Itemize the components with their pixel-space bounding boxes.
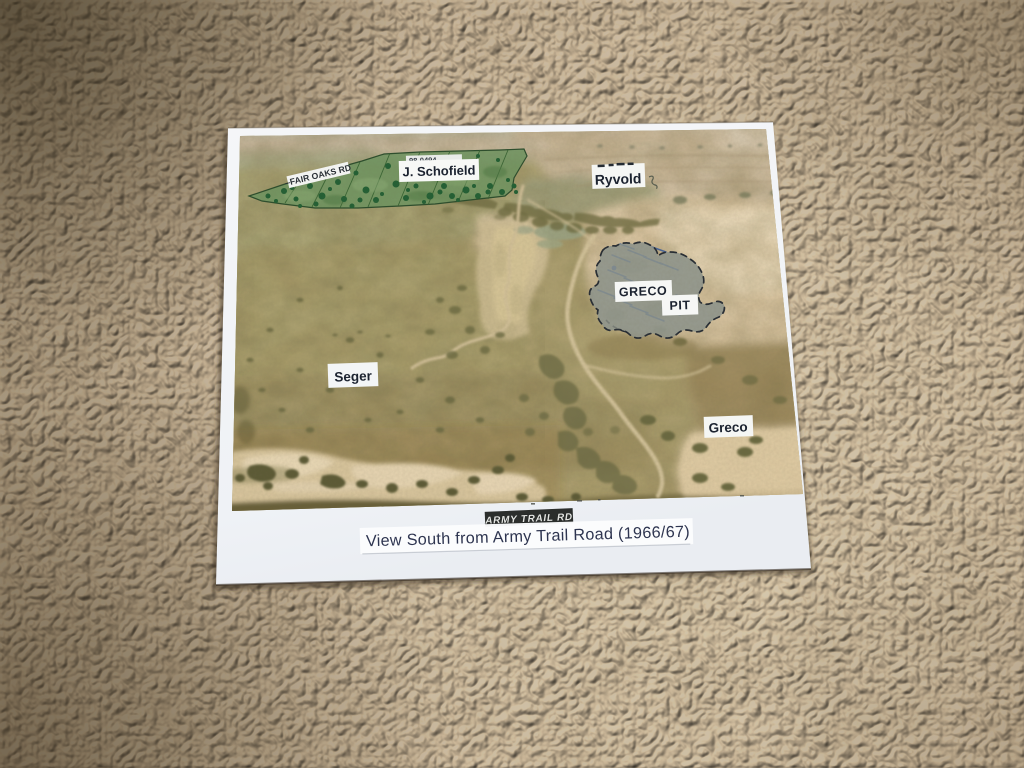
svg-text:Seger: Seger — [334, 368, 373, 384]
svg-text:Greco: Greco — [708, 419, 748, 435]
svg-text:PIT: PIT — [669, 298, 690, 313]
svg-text:Ryvold: Ryvold — [594, 170, 641, 188]
svg-text:GRECO: GRECO — [619, 284, 668, 300]
svg-text:J. Schofield: J. Schofield — [402, 163, 475, 180]
